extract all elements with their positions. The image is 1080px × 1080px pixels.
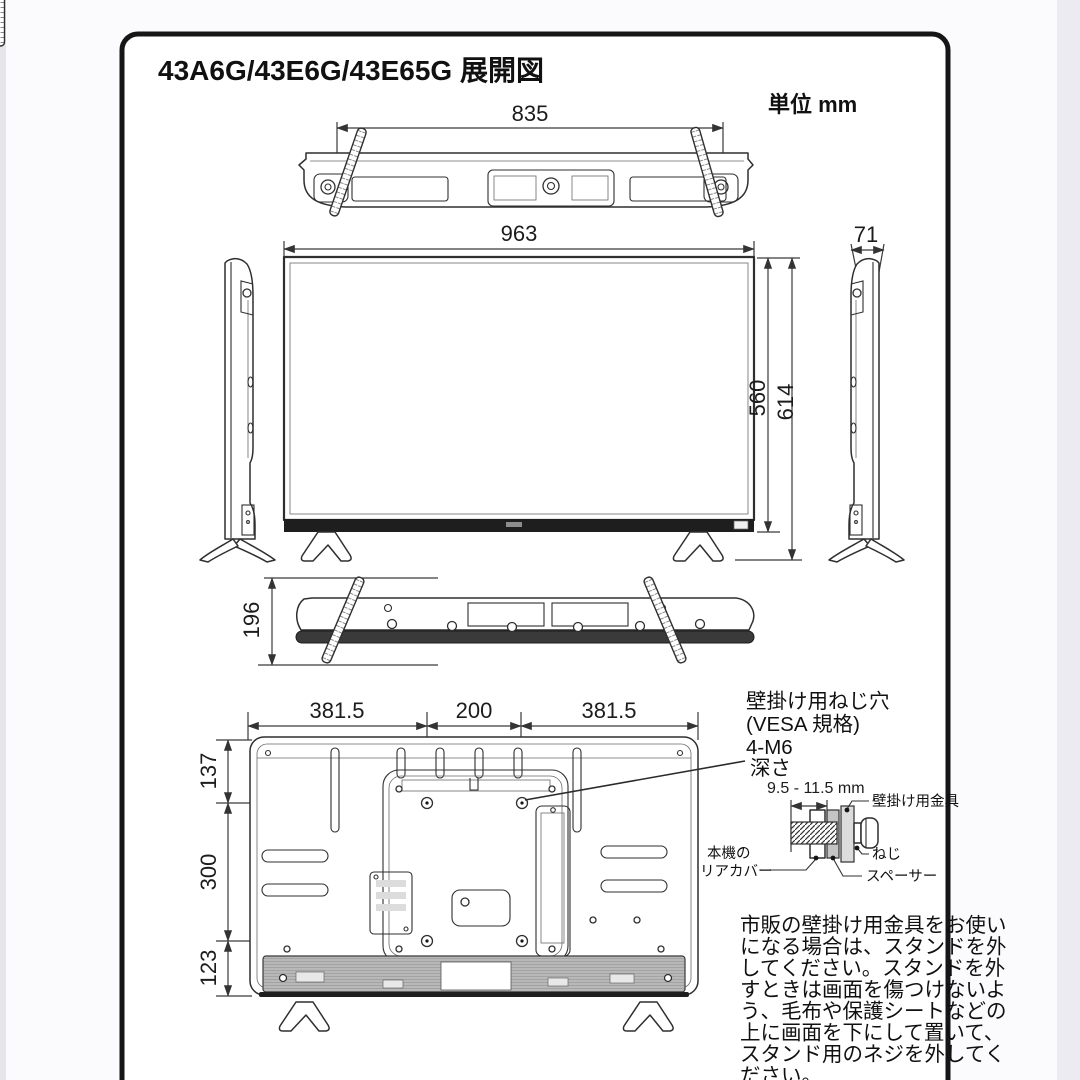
bracket-depth-range-label: 9.5 - 11.5 mm — [767, 780, 865, 797]
stand-note-line-1: になる場合は、スタンドを外 — [740, 936, 1007, 959]
top-view-body — [299, 153, 753, 207]
indicator-window — [734, 521, 748, 529]
brand-logo — [506, 522, 522, 527]
rear-cover-label-line2: リアカバー — [700, 864, 773, 880]
rear-bottom-strip — [263, 956, 685, 992]
dim-rear-side-middle-label: 300 — [196, 854, 221, 891]
dim-rear-side-bottom-label: 123 — [196, 950, 221, 987]
vesa-note-line4: 深さ — [750, 757, 791, 780]
dim-stand-depth-label: 196 — [239, 602, 264, 639]
stand-note-line-5: 上に画面を下にして置いて、 — [740, 1022, 1004, 1045]
unit-label: 単位 mm — [768, 92, 857, 117]
rear-panel — [250, 737, 698, 997]
dim-rear-side-top-label: 137 — [196, 753, 221, 790]
stand-note: 市販の壁掛け用金具をお使い になる場合は、スタンドを外 してください。スタンドを… — [740, 914, 1007, 1080]
exploded-view-diagram: 43A6G/43E6G/43E65G 展開図 単位 mm 835 — [0, 0, 1080, 1080]
rear-bottom-edge — [259, 992, 689, 997]
bracket-label: 壁掛け用金具 — [872, 793, 959, 810]
front-panel — [284, 257, 754, 520]
stand-note-line-0: 市販の壁掛け用金具をお使い — [740, 914, 1007, 937]
rear-view: 381.5 200 381.5 137 300 123 — [196, 698, 698, 1031]
stand-note-line-6: スタンド用のネジを外してく — [740, 1043, 1005, 1066]
vesa-note-line2: (VESA 規格) — [746, 713, 860, 736]
dim-total-height-label: 614 — [773, 384, 798, 421]
stand-note-line-2: してください。スタンドを外 — [740, 957, 1005, 980]
front-view: 963 560 614 — [284, 221, 802, 561]
camera-lens — [543, 178, 559, 194]
vesa-note-line3: 4-M6 — [746, 736, 793, 759]
vesa-note-line1: 壁掛け用ねじ穴 — [746, 690, 890, 713]
left-edge-strip — [0, 0, 6, 1080]
page-title: 43A6G/43E6G/43E65G 展開図 — [158, 55, 544, 86]
stand-note-line-3: すときは画面を傷つけないよ — [740, 979, 1006, 1002]
dim-rear-top-left-label: 381.5 — [309, 698, 364, 723]
dim-screen-height-label: 560 — [745, 380, 770, 417]
screw-shaft — [791, 822, 837, 844]
right-edge-strip — [1057, 0, 1080, 1080]
dim-front-width-label: 963 — [501, 221, 538, 246]
screw-label: ねじ — [872, 846, 901, 863]
screw-head — [861, 818, 878, 848]
dim-depth-label: 71 — [854, 222, 878, 247]
spacer-label: スペーサー — [866, 869, 937, 885]
bottom-view-body — [296, 598, 754, 643]
dim-rear-top-center-label: 200 — [456, 698, 493, 723]
stand-leg-rod — [0, 0, 5, 46]
rear-cover-label-line1: 本機の — [707, 845, 751, 862]
stand-note-line-4: う、毛布や保護シートなどの — [740, 1000, 1007, 1023]
bracket-plate — [841, 806, 854, 862]
dim-rear-top-right-label: 381.5 — [581, 698, 636, 723]
dim-top-width-label: 835 — [512, 101, 549, 126]
stand-note-line-7: ださい。 — [740, 1065, 822, 1080]
